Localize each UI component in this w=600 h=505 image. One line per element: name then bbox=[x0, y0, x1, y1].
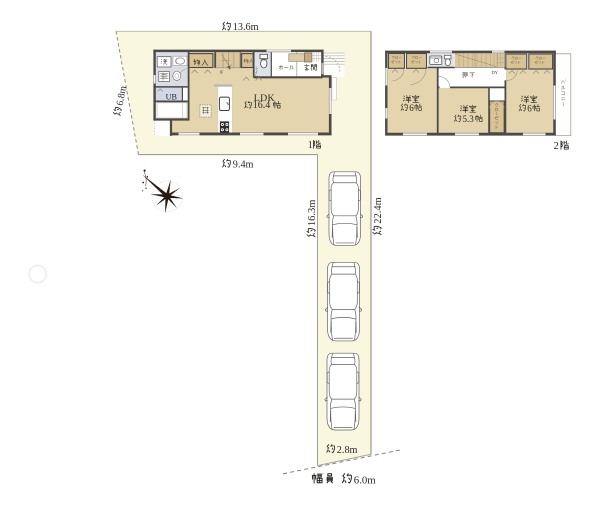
svg-text:22.4m: 22.4m bbox=[373, 197, 384, 224]
svg-text:2.8m: 2.8m bbox=[337, 445, 358, 456]
svg-text:1F: 1F bbox=[220, 71, 224, 75]
svg-text:16.3m: 16.3m bbox=[307, 200, 318, 227]
svg-text:6: 6 bbox=[409, 103, 414, 113]
svg-text:13.6m: 13.6m bbox=[233, 22, 259, 33]
svg-text:6: 6 bbox=[527, 103, 532, 113]
svg-text:5.3: 5.3 bbox=[463, 114, 475, 124]
svg-text:6.8m: 6.8m bbox=[115, 85, 129, 107]
svg-text:DY: DY bbox=[492, 70, 498, 75]
svg-text:UB: UB bbox=[166, 92, 178, 101]
svg-text:9.4m: 9.4m bbox=[233, 159, 254, 170]
svg-text:16.4: 16.4 bbox=[253, 100, 270, 111]
svg-text:2: 2 bbox=[554, 141, 559, 152]
svg-text:6.0m: 6.0m bbox=[354, 474, 376, 486]
svg-text:1: 1 bbox=[308, 140, 313, 151]
